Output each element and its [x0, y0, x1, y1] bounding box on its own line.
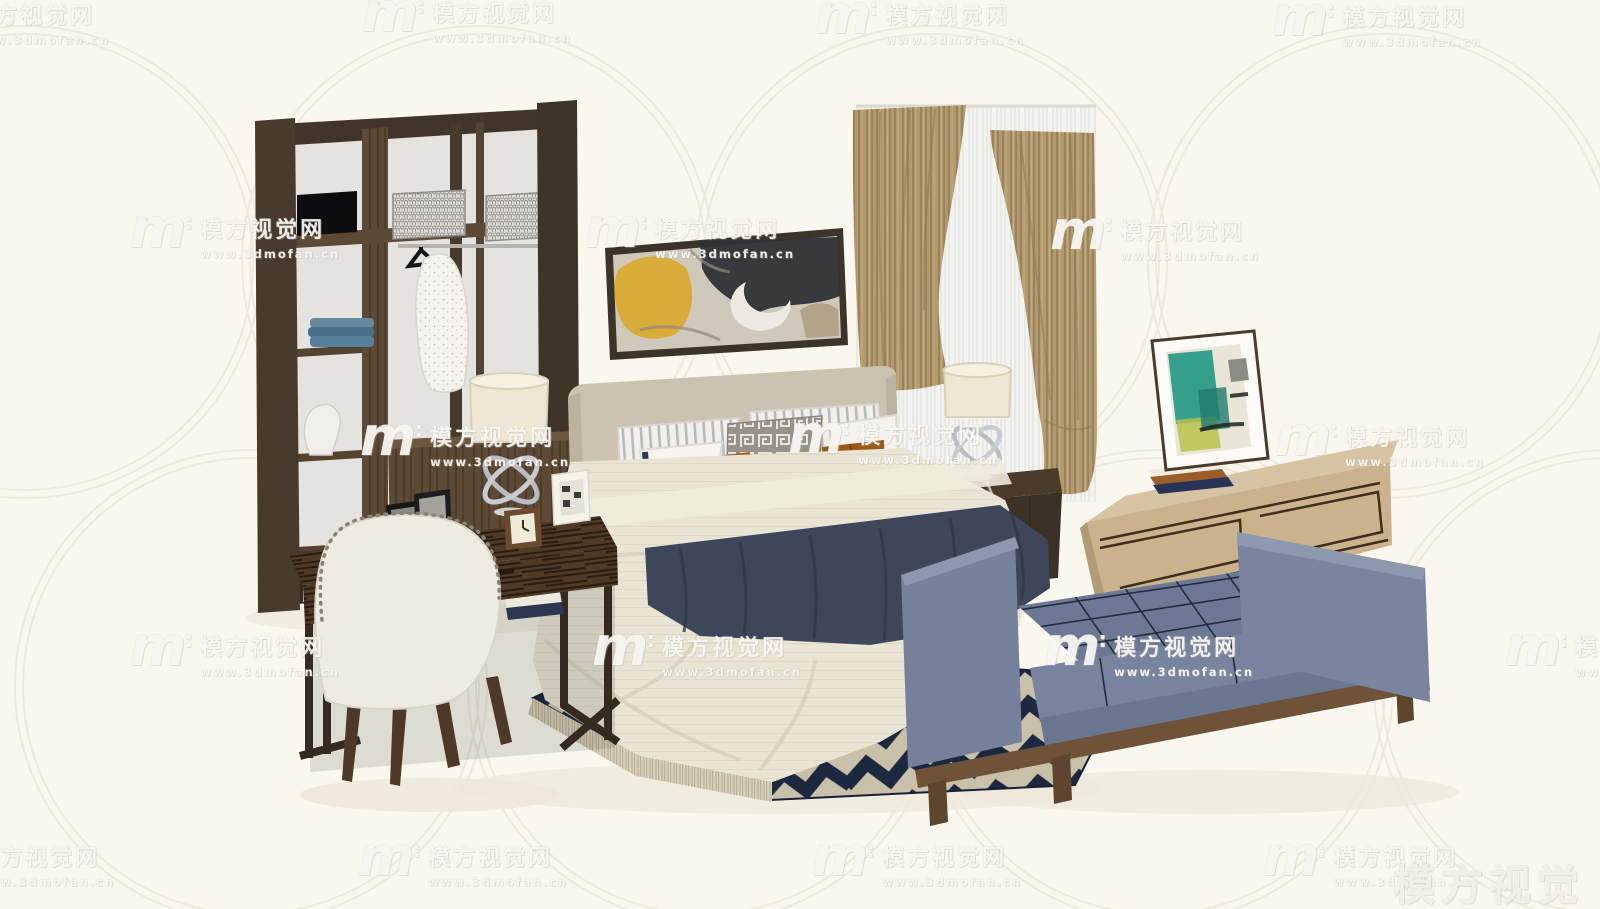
bedroom-3d-render: [0, 0, 1600, 909]
wardrobe-left-stile: [255, 118, 300, 613]
leaning-art-frame: [1152, 331, 1268, 470]
folded-towels: [308, 318, 374, 347]
chair-shell: [315, 515, 500, 709]
watermarked-render-image: m: 模方视觉网 www.3dmofan.cn m: 模方视觉网 www.3dm…: [0, 0, 1600, 909]
black-storage-box: [297, 191, 357, 236]
desk-clock: [504, 507, 542, 550]
hanging-garment: [416, 254, 468, 392]
lamp-shade: [470, 381, 548, 442]
white-art-frame: [552, 470, 590, 525]
wall-art: [605, 228, 848, 360]
